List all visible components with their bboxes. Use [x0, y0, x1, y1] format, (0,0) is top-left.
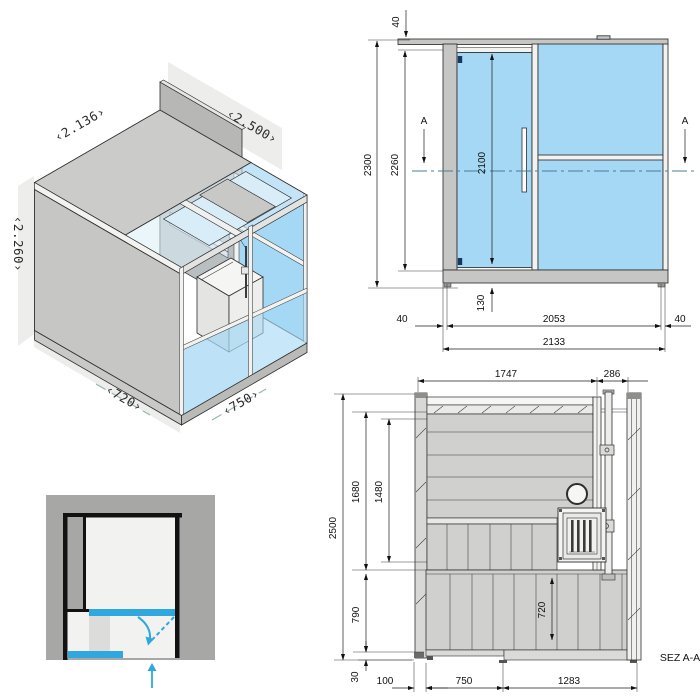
elev-hinge-top	[458, 56, 462, 63]
svg-text:A: A	[682, 116, 689, 127]
sec-vent-circle	[567, 484, 587, 504]
dim-total-height-sec: 2500	[328, 516, 339, 539]
shower-valve-icon	[600, 445, 614, 455]
dim-door-bottom-offset: 130	[476, 294, 487, 311]
elev-door-handle	[522, 128, 527, 192]
section-title: SEZ A-A	[660, 652, 700, 664]
elev-hinge-bottom	[458, 258, 462, 265]
sec-bench-slats	[427, 524, 557, 570]
dim-paneling-height: 1480	[374, 480, 385, 503]
front-elevation-view: A A 40 2300 2260 2100 130	[363, 10, 697, 352]
plan-entry-arrowhead	[148, 663, 157, 671]
plan-wall-right	[175, 513, 180, 658]
dim-floor-width: 1283	[558, 676, 581, 687]
section-view: 1747 286 2500 1680 1480 790 30 72	[328, 369, 700, 692]
technical-drawing-canvas: ‹2.136› ‹2.500› ‹2.260› ‹720› ‹750› A A	[0, 0, 700, 700]
elev-left-column	[443, 44, 457, 270]
dim-roof-thickness: 40	[391, 16, 402, 28]
elev-roof-tab	[597, 36, 610, 39]
dim-glass-width: 2053	[543, 314, 566, 325]
dim-margin-left: 40	[396, 314, 408, 325]
sec-wall-planks	[427, 414, 593, 524]
dim-platform-height: 720	[537, 601, 548, 618]
dim-total-height: 2300	[363, 153, 374, 176]
dim-platform-zone-height: 790	[351, 606, 362, 623]
drawing-sheet: ‹2.136› ‹2.500› ‹2.260› ‹720› ‹750› A A	[0, 0, 700, 700]
isometric-view: ‹2.136› ‹2.500› ‹2.260› ‹720› ‹750›	[11, 62, 307, 433]
elev-section-marker-left: A	[421, 116, 428, 163]
dim-sauna-width: 1747	[495, 369, 518, 380]
dim-total-width: 2133	[543, 337, 566, 348]
dim-margin-right: 40	[674, 314, 686, 325]
dim-body-height: 2260	[390, 153, 401, 176]
sec-stove	[558, 508, 606, 562]
dim-shower-width: 286	[604, 369, 621, 380]
plan-glass-front	[68, 651, 123, 658]
floor-plan-icon	[46, 495, 215, 688]
svg-text:A: A	[421, 116, 428, 127]
iso-label-height: ‹2.260›	[11, 216, 26, 272]
plan-wall-left	[63, 513, 68, 660]
sec-ceiling	[427, 397, 593, 414]
sec-right-wall	[627, 393, 641, 660]
sec-platform	[426, 570, 640, 663]
plan-tech-compartment	[68, 517, 84, 609]
dim-interior-height: 1680	[351, 480, 362, 503]
plan-partition-cap	[67, 609, 89, 612]
dim-wall-offset: 100	[377, 676, 394, 687]
dim-door-height: 2100	[477, 151, 488, 174]
plan-wall-top	[63, 513, 182, 518]
elev-door-glass	[457, 53, 532, 268]
elev-mullion	[532, 44, 538, 270]
iso-label-depth: ‹2.136›	[52, 104, 108, 145]
plan-partition	[83, 513, 86, 612]
elev-section-marker-right: A	[682, 116, 689, 163]
sec-left-wall	[414, 393, 427, 658]
iso-door-post	[249, 225, 253, 380]
plan-glass-wall	[89, 609, 175, 616]
elev-glass-divider	[538, 155, 663, 160]
dim-platform-width: 750	[456, 676, 473, 687]
elev-base	[443, 270, 668, 283]
plan-shower-tray	[89, 616, 110, 652]
dim-plinth-height: 30	[350, 671, 361, 683]
